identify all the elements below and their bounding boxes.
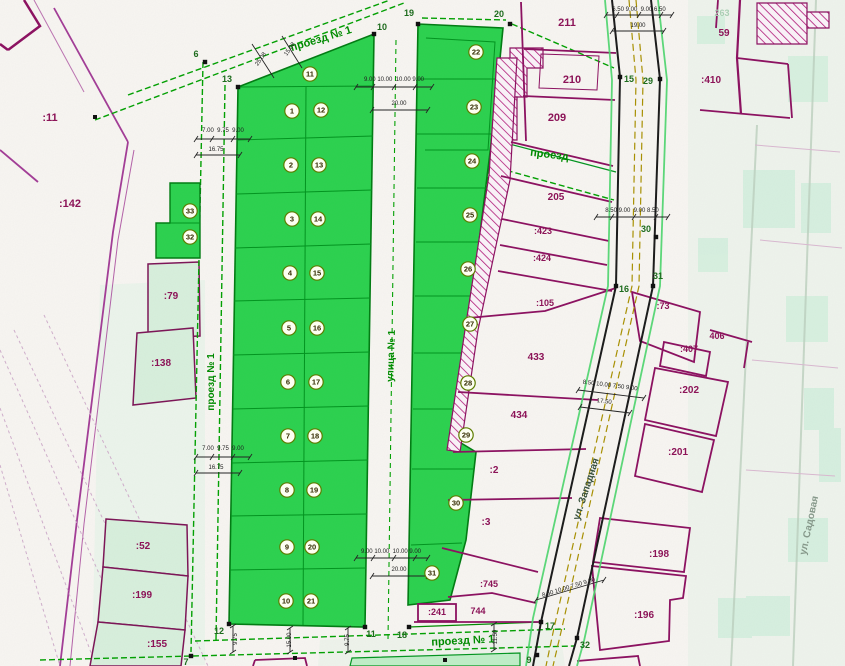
svg-text:11: 11 (366, 629, 376, 639)
svg-text:28: 28 (464, 379, 472, 388)
svg-text:12: 12 (317, 106, 325, 115)
dimension-label: 20.00 (391, 101, 407, 107)
parcel-label: :423 (534, 226, 552, 236)
svg-text:16: 16 (313, 324, 321, 333)
svg-text:12: 12 (214, 626, 224, 636)
parcel-label: :79 (164, 291, 179, 302)
cadastral-map: проезд № 1проезд № 1улица № 1проезд № 1п… (0, 0, 845, 666)
dimension-label: 20.00 (391, 567, 407, 573)
plot-number-badge: 26 (461, 262, 475, 276)
junction-dot (93, 115, 97, 119)
plot-number-badge: 22 (469, 45, 483, 59)
parcel-label: 59 (718, 28, 730, 39)
dimension-label: 9.00 10.00 10.00 9.00 (361, 549, 422, 555)
plot-number-badge: 33 (183, 204, 197, 218)
svg-text:2: 2 (289, 161, 293, 170)
svg-text:1: 1 (290, 107, 294, 116)
parcel-label: :52 (136, 541, 151, 552)
svg-text:17: 17 (545, 621, 555, 631)
plot-number-badge: 11 (303, 67, 317, 81)
svg-text:29: 29 (462, 431, 470, 440)
parcel-label: :424 (533, 253, 551, 263)
svg-text:11: 11 (306, 70, 314, 79)
parcel-label: 211 (558, 17, 576, 29)
dimension-label: 6.50 9.00 9.00 6.50 (612, 7, 666, 13)
parcel-label: 205 (548, 192, 565, 203)
plot-number-badge: 29 (459, 428, 473, 442)
svg-text:32: 32 (580, 640, 590, 650)
svg-text:21: 21 (307, 597, 315, 606)
svg-text:13: 13 (222, 74, 232, 84)
svg-text:18: 18 (397, 630, 407, 640)
svg-text:30: 30 (452, 499, 460, 508)
dimension-label: 15.00 (287, 632, 293, 648)
svg-text:10: 10 (377, 22, 387, 32)
parcel-label: 433 (528, 352, 545, 363)
parcel-label: :155 (147, 639, 167, 650)
svg-text:19: 19 (310, 486, 318, 495)
parcel-label: :199 (132, 590, 152, 601)
svg-text:33: 33 (186, 207, 194, 216)
svg-text:3: 3 (290, 215, 294, 224)
dimension-label: 16.75 (208, 147, 224, 153)
svg-text:9: 9 (526, 655, 531, 665)
parcel-label: 210 (563, 74, 581, 86)
svg-text:32: 32 (186, 233, 194, 242)
plot-number-badge: 23 (467, 100, 481, 114)
svg-text:5: 5 (287, 324, 291, 333)
svg-text:20: 20 (308, 543, 316, 552)
plot-number-badge: 3 (285, 212, 299, 226)
parcel-label: 434 (511, 410, 528, 421)
junction-dot (293, 656, 297, 660)
svg-text:30: 30 (641, 224, 651, 234)
cadastral-map-canvas: проезд № 1проезд № 1улица № 1проезд № 1п… (0, 0, 845, 666)
svg-text:10: 10 (282, 597, 290, 606)
plot-number-badge: 14 (311, 212, 325, 226)
dimension-label: 11.50 (493, 629, 499, 644)
parcel-label: :745 (480, 579, 498, 589)
street-label: проезд № 1 (206, 353, 217, 411)
svg-text:29: 29 (643, 76, 653, 86)
dimension-label: 19.00 (630, 23, 646, 29)
plot-number-badge: 13 (312, 158, 326, 172)
street-label: улица № 1 (385, 329, 398, 382)
plot-number-badge: 12 (314, 103, 328, 117)
parcel-label: :201 (668, 447, 688, 458)
parcel-label: 406 (709, 331, 724, 341)
plot-number-badge: 4 (283, 266, 297, 280)
svg-text:15: 15 (624, 74, 634, 84)
svg-text:6: 6 (193, 49, 198, 59)
parcel-label: :241 (428, 607, 446, 617)
dimension-label: 9.75 (345, 634, 351, 646)
svg-text:17: 17 (312, 378, 320, 387)
plot-number-badge: 9 (280, 540, 294, 554)
svg-text:6: 6 (286, 378, 290, 387)
plot-number-badge: 28 (461, 376, 475, 390)
svg-text:9: 9 (285, 543, 289, 552)
dimension-label: 9.00 10.00 10.00 9.00 (364, 77, 425, 83)
svg-text:27: 27 (466, 320, 474, 329)
parcel-label: :2 (490, 465, 499, 476)
plot-number-badge: 17 (309, 375, 323, 389)
plot-number-badge: 2 (284, 158, 298, 172)
dimension-label: 8.50 9.00 9.00 8.50 (605, 208, 659, 214)
svg-text:13: 13 (315, 161, 323, 170)
parcel-label: :198 (649, 549, 669, 560)
parcel-label: :407 (680, 344, 698, 354)
svg-text:20: 20 (494, 9, 504, 19)
parcel-label: 263 (714, 8, 729, 18)
svg-text:25: 25 (466, 211, 474, 220)
plot-number-badge: 32 (183, 230, 197, 244)
svg-text:23: 23 (470, 103, 478, 112)
plot-number-badge: 6 (281, 375, 295, 389)
dimension-label: 9.75 (233, 633, 239, 645)
parcel-label: :73 (656, 301, 669, 311)
parcel-label: :202 (679, 385, 699, 396)
svg-text:16: 16 (619, 284, 629, 294)
plot-number-badge: 16 (310, 321, 324, 335)
plot-number-badge: 25 (463, 208, 477, 222)
plot-number-badge: 1 (285, 104, 299, 118)
plot-number-badge: 27 (463, 317, 477, 331)
svg-text:24: 24 (468, 157, 477, 166)
parcel-label: :105 (536, 298, 554, 308)
parcel-label: :138 (151, 358, 171, 369)
svg-text:15: 15 (313, 269, 321, 278)
svg-text:31: 31 (653, 271, 663, 281)
parcel-label: :3 (482, 517, 491, 528)
plot-number-badge: 7 (281, 429, 295, 443)
parcel-label: 744 (470, 606, 485, 616)
parcel-label: :142 (59, 198, 81, 210)
plot-number-badge: 19 (307, 483, 321, 497)
junction-dot (443, 658, 447, 662)
parcel-label: :11 (42, 112, 57, 124)
plot-number-badge: 8 (280, 483, 294, 497)
plot-number-badge: 5 (282, 321, 296, 335)
plot-number-badge: 10 (279, 594, 293, 608)
plot-number-badge: 20 (305, 540, 319, 554)
svg-text:26: 26 (464, 265, 472, 274)
svg-text:22: 22 (472, 48, 480, 57)
svg-text:19: 19 (404, 8, 414, 18)
parcel-label: :410 (701, 75, 721, 86)
dimension-label: 7.00 9.75 9.00 (202, 128, 244, 134)
svg-text:14: 14 (314, 215, 323, 224)
svg-text:7: 7 (183, 657, 188, 666)
dimension-label: 16.75 (208, 465, 224, 471)
svg-text:18: 18 (311, 432, 319, 441)
parcel-label: :196 (634, 610, 654, 621)
plot-number-badge: 30 (449, 496, 463, 510)
plot-number-badge: 18 (308, 429, 322, 443)
svg-text:8: 8 (285, 486, 289, 495)
plot-number-badge: 21 (304, 594, 318, 608)
parcel-label: 209 (548, 112, 566, 124)
svg-text:31: 31 (428, 569, 436, 578)
plot-number-badge: 24 (465, 154, 479, 168)
svg-text:7: 7 (286, 432, 290, 441)
dimension-label: 7.00 9.75 9.00 (202, 446, 244, 452)
plot-number-badge: 31 (425, 566, 439, 580)
plot-number-badge: 15 (310, 266, 324, 280)
